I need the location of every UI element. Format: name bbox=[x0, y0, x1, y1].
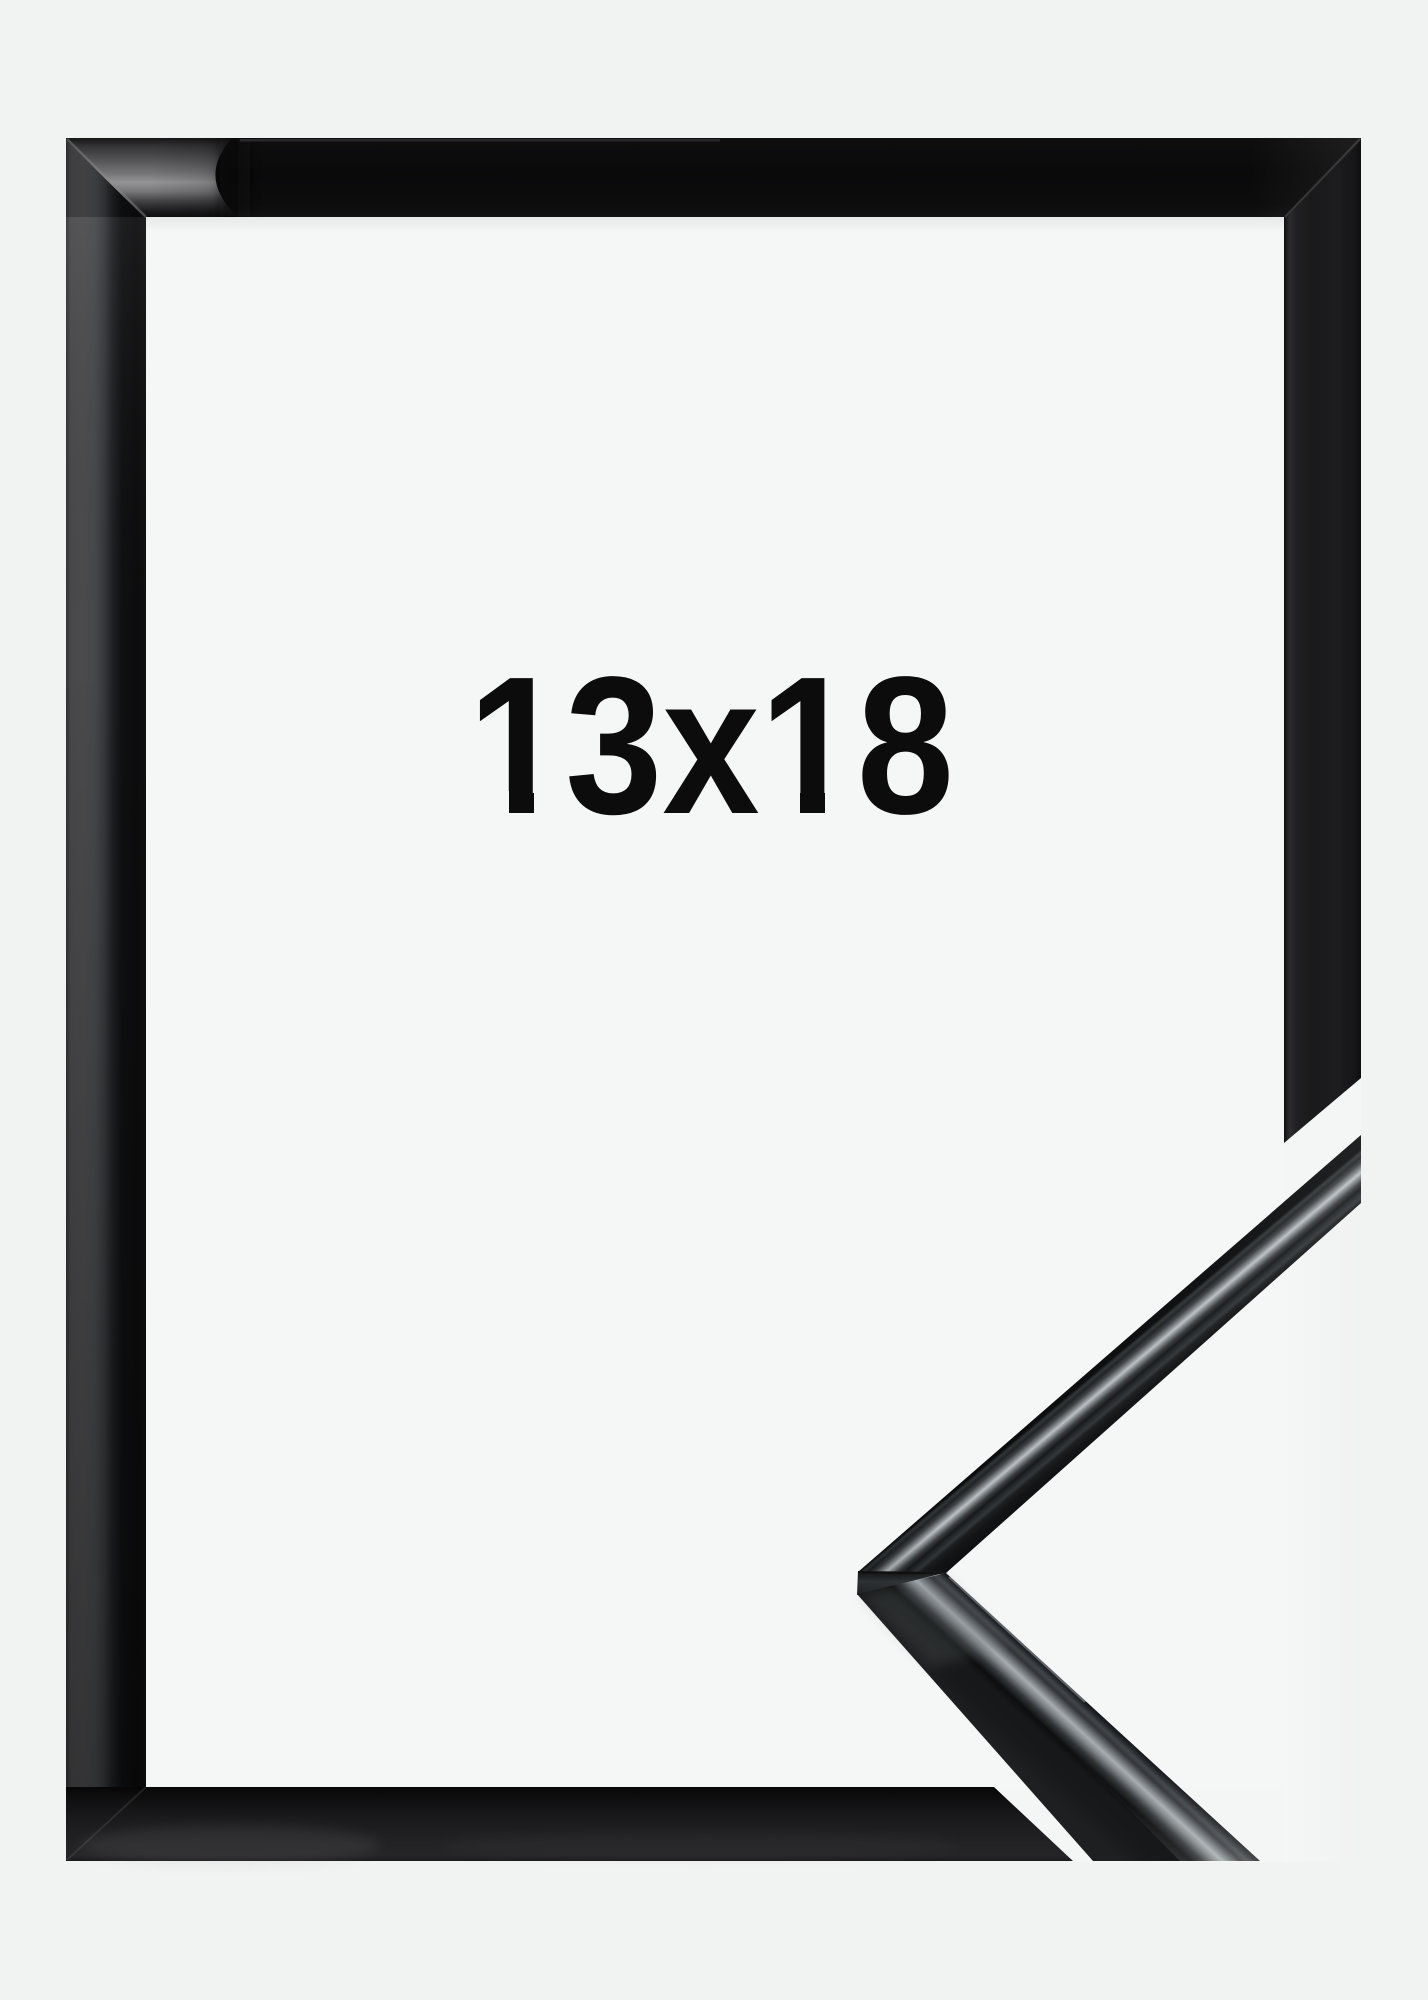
svg-text:13x18: 13x18 bbox=[468, 636, 954, 855]
